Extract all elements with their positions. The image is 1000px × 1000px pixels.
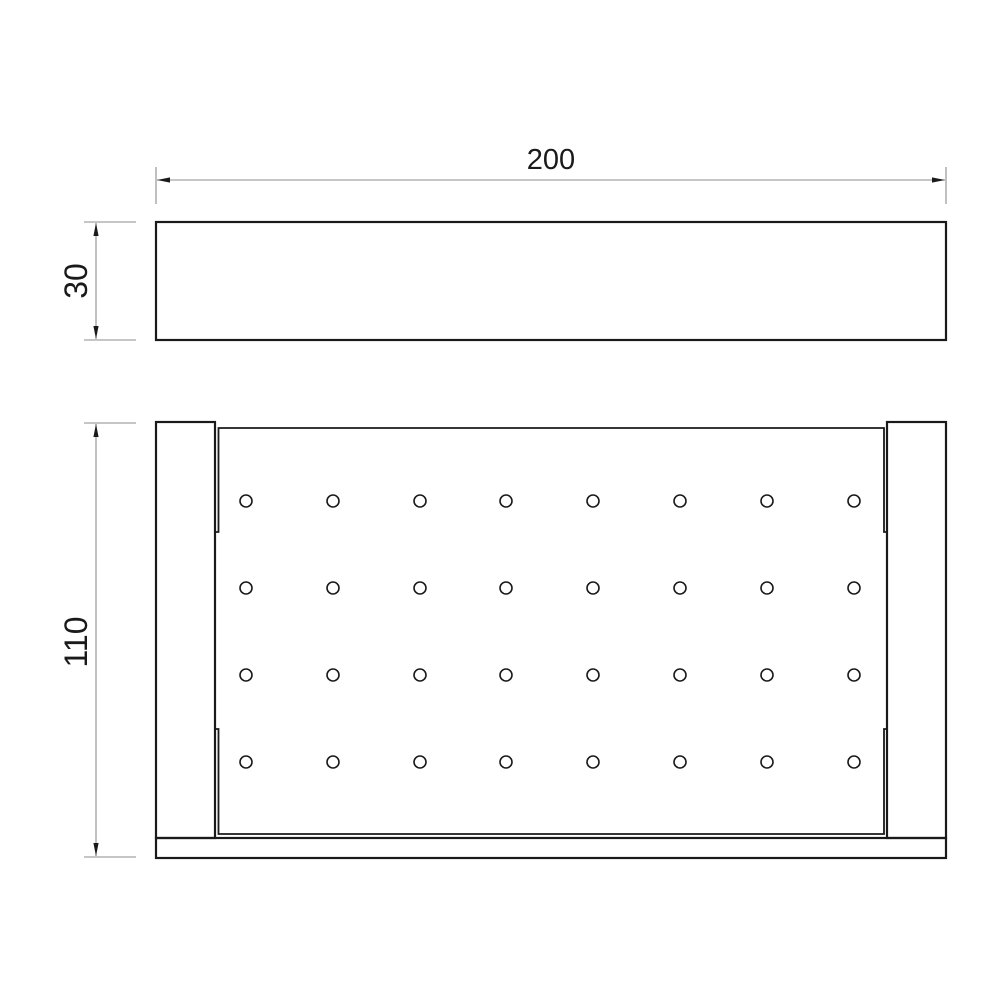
right-bracket-outline [887,422,946,838]
hole [500,669,512,681]
hole [414,669,426,681]
hole [327,582,339,594]
hole [761,756,773,768]
hole [848,582,860,594]
left-bracket-outline [156,422,215,838]
hole [414,495,426,507]
perforated-plate-outline [215,428,889,834]
hole [240,495,252,507]
dimension-label: 110 [58,616,94,667]
technical-drawing: 200 30 110 [0,0,1000,1000]
hole [500,582,512,594]
front-view-outline [156,222,946,340]
hole [327,669,339,681]
dimension-width-200: 200 [156,144,946,204]
hole-grid [240,495,860,768]
hole [848,669,860,681]
arrowhead-end [93,843,98,856]
hole [587,756,599,768]
arrowhead-start [93,223,98,236]
front-view [156,222,946,340]
bottom-rail-outline [156,838,946,858]
hole [761,495,773,507]
hole [240,669,252,681]
plan-view [156,422,946,858]
hole [500,756,512,768]
hole [414,756,426,768]
hole [674,756,686,768]
arrowhead-start [157,177,170,182]
dimension-plan-height-110: 110 [58,423,136,857]
hole [587,669,599,681]
hole [587,582,599,594]
drawing-stage: 200 30 110 [0,0,1000,1000]
arrowhead-end [932,177,945,182]
hole [674,495,686,507]
hole [587,495,599,507]
arrowhead-start [93,424,98,437]
hole [240,756,252,768]
hole [674,582,686,594]
hole [327,756,339,768]
hole [761,669,773,681]
dimension-label: 200 [527,144,575,176]
hole [414,582,426,594]
dimension-front-height-30: 30 [58,222,136,340]
hole [848,495,860,507]
hole [240,582,252,594]
hole [848,756,860,768]
hole [761,582,773,594]
dimension-label: 30 [58,263,94,299]
hole [327,495,339,507]
arrowhead-end [93,326,98,339]
hole [674,669,686,681]
hole [500,495,512,507]
